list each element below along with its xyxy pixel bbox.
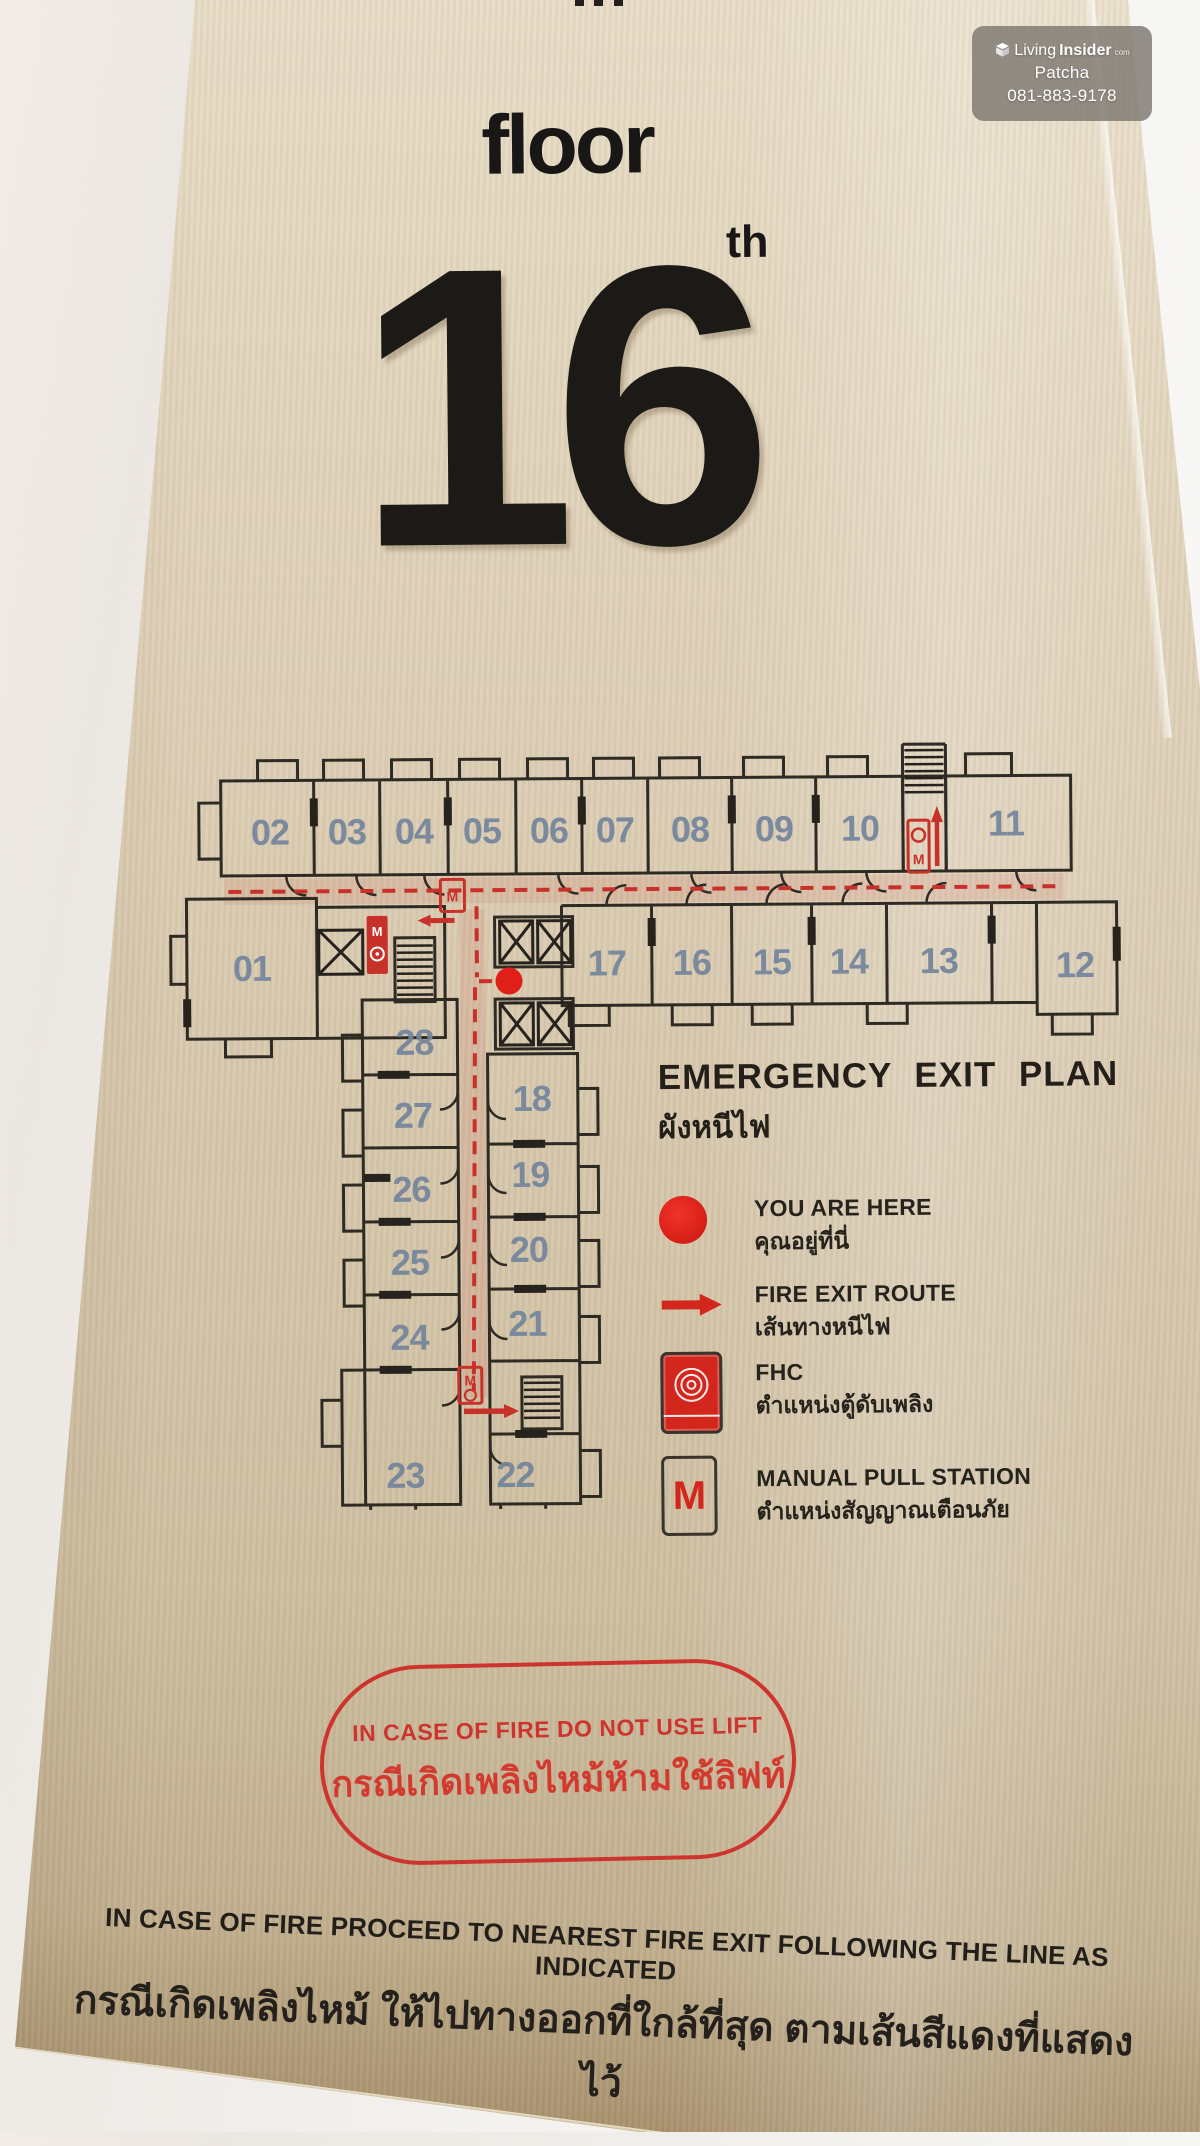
you-are-here-marker — [495, 967, 522, 994]
room-number-25: 25 — [391, 1242, 430, 1283]
manual-pull-station-icon: M — [661, 1456, 718, 1536]
legend-item-fire-exit-route: FIRE EXIT ROUTE เส้นทางหนีไฟ — [660, 1280, 957, 1348]
room-number-16: 16 — [673, 942, 711, 983]
legend-item-fhc: FHC ตำแหน่งตู้ดับเพลิง — [660, 1350, 933, 1434]
room-number-05: 05 — [463, 810, 502, 851]
box-logo-icon — [994, 42, 1011, 59]
watermark-brand: LivingInsidercom — [994, 42, 1129, 60]
legend-item-label-thai: ตำแหน่งตู้ดับเพลิง — [755, 1387, 933, 1425]
room-number-18: 18 — [513, 1078, 551, 1119]
legend-item-label: FHC — [755, 1358, 933, 1387]
svg-text:M: M — [447, 888, 459, 904]
room-number-07: 07 — [596, 809, 634, 850]
room-number-06: 06 — [530, 810, 568, 851]
room-number-02: 02 — [251, 812, 289, 853]
legend-item-label: YOU ARE HERE — [754, 1194, 932, 1223]
room-number-23: 23 — [386, 1455, 424, 1496]
watermark-badge: LivingInsidercom Patcha 081-883-9178 — [972, 26, 1152, 121]
room-number-15: 15 — [753, 941, 792, 982]
room-number-17: 17 — [588, 942, 626, 983]
svg-text:M: M — [372, 924, 383, 939]
fhc-cabinet-icon — [660, 1352, 723, 1435]
room-number-08: 08 — [671, 809, 709, 850]
room-number-04: 04 — [395, 811, 434, 852]
manual-pull-station-letter: M — [673, 1473, 707, 1518]
room-number-19: 19 — [511, 1154, 549, 1195]
cropped-text-remnant — [594, 0, 603, 6]
room-number-22: 22 — [496, 1454, 534, 1495]
legend-title-thai: ผังหนีไฟ — [658, 1098, 1138, 1152]
room-number-20: 20 — [510, 1229, 548, 1270]
watermark-brand-suffix: com — [1115, 48, 1130, 57]
legend-item-label: MANUAL PULL STATION — [756, 1463, 1031, 1492]
room-number-09: 09 — [755, 808, 793, 849]
watermark-brand-light: Living — [1014, 42, 1056, 60]
watermark-brand-bold: Insider — [1059, 42, 1111, 60]
sign-content: floor th 16 — [0, 0, 1200, 2132]
room-number-13: 13 — [920, 940, 958, 981]
room-number-11: 11 — [988, 802, 1025, 843]
you-are-here-dot-icon — [659, 1196, 707, 1244]
watermark-phone: 081-883-9178 — [1007, 86, 1116, 106]
room-number-01: 01 — [233, 948, 272, 989]
warning-text-en: IN CASE OF FIRE DO NOT USE LIFT — [352, 1712, 763, 1748]
legend-item-label-thai: เส้นทางหนีไฟ — [755, 1309, 957, 1347]
cropped-text-remnant — [614, 0, 623, 6]
legend-item-label-thai: คุณอยู่ที่นี่ — [754, 1223, 932, 1261]
legend: EMERGENCY EXIT PLAN ผังหนีไฟ YOU ARE HER… — [658, 1054, 1139, 1152]
legend-item-manual-pull-station: M MANUAL PULL STATION ตำแหน่งสัญญาณเตือน… — [661, 1453, 1032, 1536]
room-number-21: 21 — [508, 1303, 547, 1344]
room-number-10: 10 — [841, 807, 879, 848]
legend-title: EMERGENCY EXIT PLAN — [658, 1054, 1138, 1098]
room-number-26: 26 — [392, 1169, 430, 1210]
room-number-14: 14 — [830, 941, 869, 982]
fire-exit-route-arrow-icon — [660, 1292, 722, 1319]
watermark-name: Patcha — [1035, 63, 1090, 83]
cropped-text-remnant — [575, 0, 584, 6]
photo-of-fire-exit-sign: floor th 16 — [0, 0, 1200, 2132]
floor-label: floor — [481, 95, 653, 193]
room-number-27: 27 — [394, 1095, 432, 1136]
do-not-use-lift-warning-box: IN CASE OF FIRE DO NOT USE LIFT กรณีเกิด… — [318, 1657, 798, 1867]
legend-item-label: FIRE EXIT ROUTE — [755, 1280, 957, 1309]
footer-instructions: IN CASE OF FIRE PROCEED TO NEAREST FIRE … — [50, 1900, 1157, 2136]
warning-text-thai: กรณีเกิดเพลิงไหม้ห้ามใช้ลิฟท์ — [331, 1746, 786, 1812]
legend-item-label-thai: ตำแหน่งสัญญาณเตือนภัย — [756, 1492, 1031, 1530]
legend-item-you-are-here: YOU ARE HERE คุณอยู่ที่นี่ — [659, 1194, 932, 1261]
room-number-24: 24 — [390, 1317, 429, 1358]
room-number-28: 28 — [395, 1022, 433, 1063]
svg-text:M: M — [464, 1372, 476, 1388]
floor-number: 16 — [353, 206, 751, 607]
svg-text:M: M — [913, 851, 925, 867]
room-number-12: 12 — [1056, 944, 1094, 985]
room-number-03: 03 — [328, 811, 366, 852]
